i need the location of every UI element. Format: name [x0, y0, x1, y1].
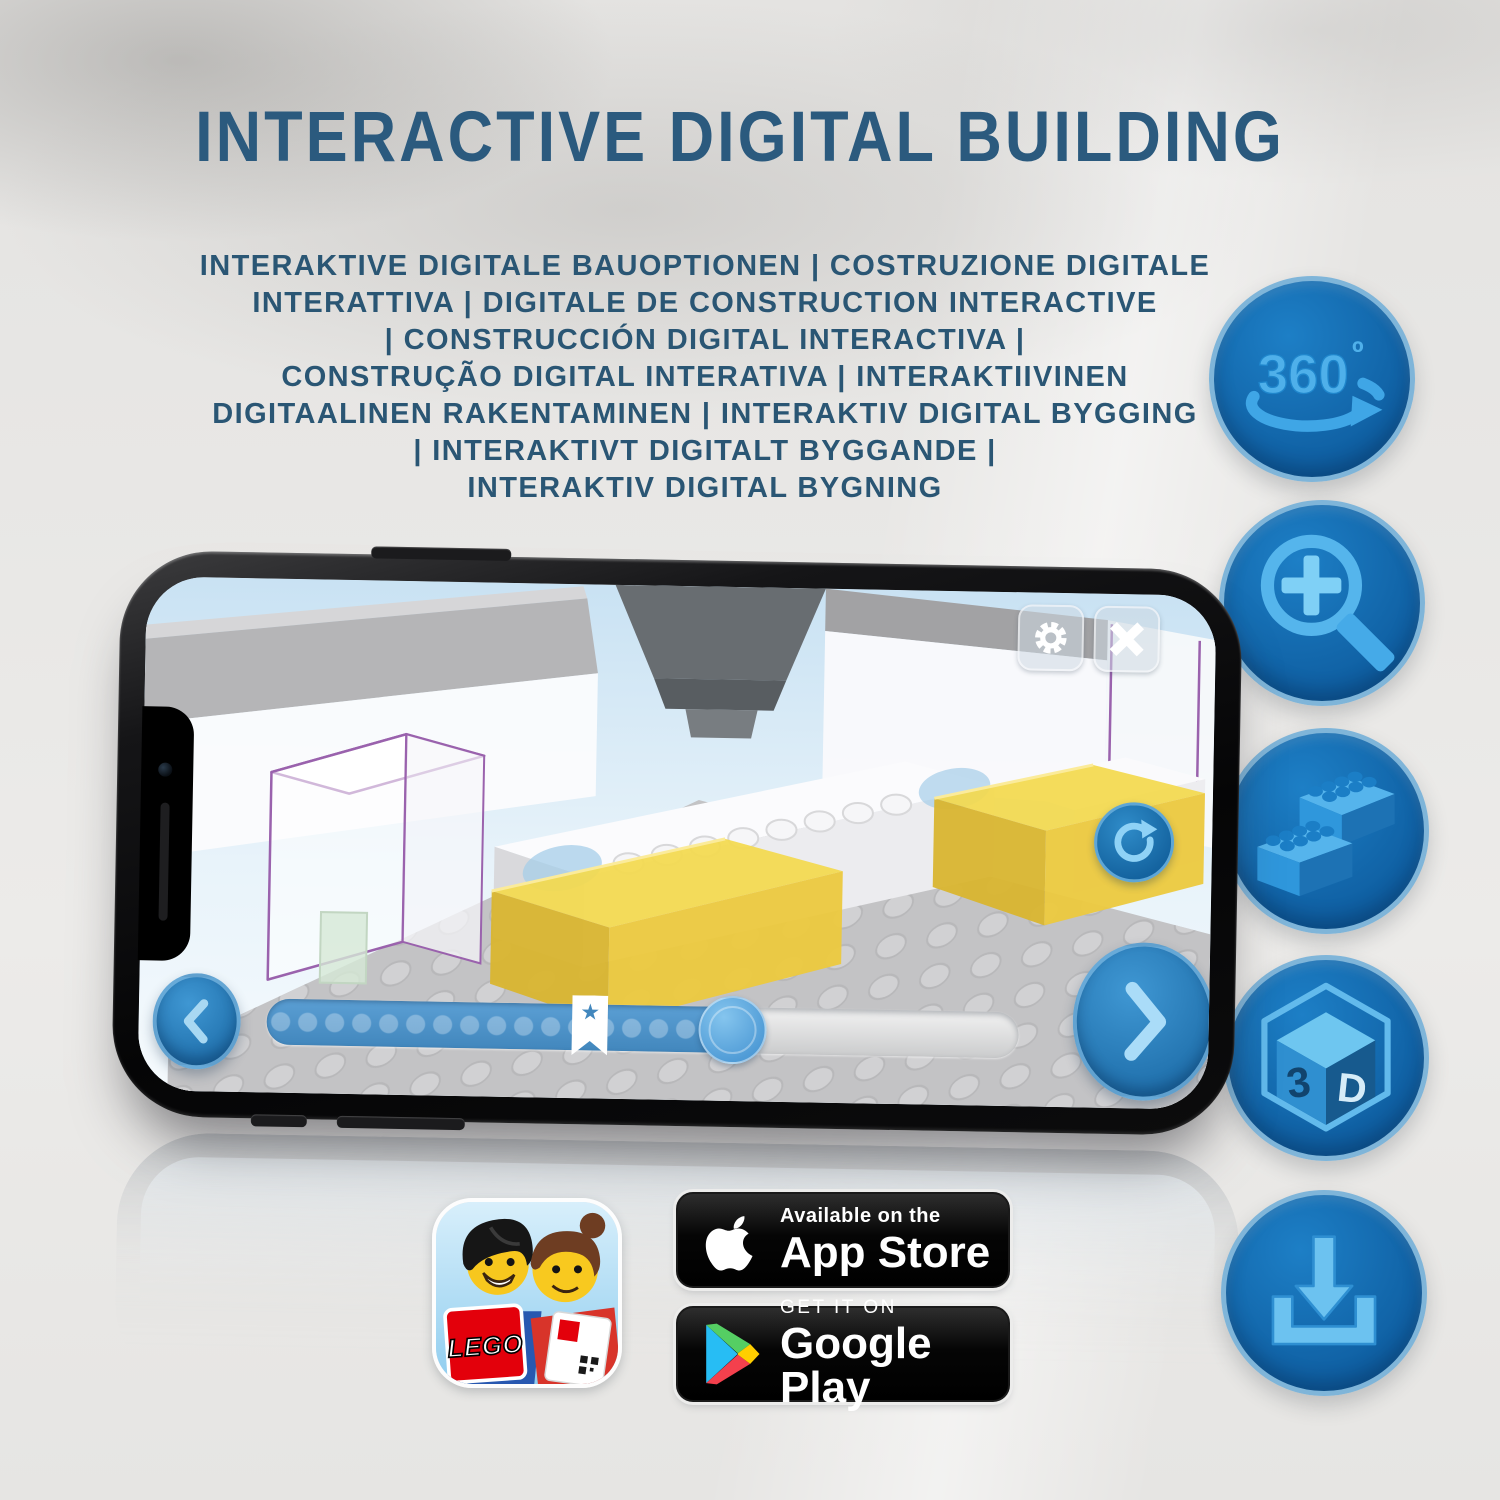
phone-device: ★	[111, 550, 1243, 1136]
subtitle-line: | INTERAKTIVT DIGITALT BYGGANDE |	[0, 433, 1410, 470]
lego-app-artwork: LEGO	[436, 1202, 618, 1384]
lego-logo-text: LEGO	[447, 1330, 525, 1363]
power-button[interactable]	[371, 546, 511, 561]
download-icon	[1236, 1205, 1412, 1381]
chevron-left-icon	[161, 984, 232, 1059]
subtitle-line: CONSTRUÇÃO DIGITAL INTERATIVA | INTERAKT…	[0, 359, 1410, 396]
feature-zoom-in	[1219, 500, 1425, 706]
lego-bricks-icon	[1238, 743, 1414, 919]
degree-symbol: º	[1352, 334, 1364, 370]
360-rotation-icon: 360 º	[1224, 291, 1400, 467]
subtitle-line: INTERAKTIV DIGITAL BYGNING	[0, 470, 1410, 507]
phone-frame: ★	[111, 550, 1243, 1136]
subtitle-line: | CONSTRUCCIÓN DIGITAL INTERACTIVA |	[0, 322, 1410, 359]
instruction-card	[544, 1311, 611, 1384]
app-store-name: App Store	[780, 1231, 990, 1275]
feature-brick-selection	[1223, 728, 1429, 934]
volume-buttons[interactable]	[337, 1116, 465, 1130]
speaker-slit	[158, 803, 169, 921]
feature-download	[1221, 1190, 1427, 1396]
refresh-icon	[1107, 815, 1162, 870]
google-play-name: Google Play	[780, 1322, 1008, 1410]
phone-notch	[138, 706, 195, 961]
star-icon: ★	[580, 995, 600, 1029]
gear-icon	[1028, 615, 1073, 660]
3d-cube-icon: 3 D	[1238, 970, 1414, 1146]
subtitle-line: INTERATTIVA | DIGITALE DE CONSTRUCTION I…	[0, 285, 1410, 322]
google-play-triangle-icon	[700, 1321, 762, 1387]
subtitle-block: INTERAKTIVE DIGITALE BAUOPTIONEN | COSTR…	[0, 248, 1410, 507]
subtitle-line: DIGITAALINEN RAKENTAMINEN | INTERAKTIV D…	[0, 396, 1410, 433]
prev-step-button[interactable]	[152, 972, 242, 1070]
google-play-badge[interactable]: GET IT ON Google Play	[676, 1306, 1010, 1402]
360-label: 360	[1258, 344, 1349, 405]
phone-screen: ★	[137, 576, 1216, 1110]
close-button[interactable]	[1093, 606, 1160, 673]
progress-fill	[266, 999, 733, 1054]
lego-app-icon[interactable]: LEGO	[432, 1198, 622, 1388]
lego-logo: LEGO	[445, 1305, 526, 1383]
close-icon	[1104, 617, 1149, 662]
cube-d-label: D	[1335, 1064, 1369, 1113]
app-store-badge[interactable]: Available on the App Store	[676, 1192, 1010, 1288]
subtitle-line: INTERAKTIVE DIGITALE BAUOPTIONEN | COSTR…	[0, 248, 1410, 285]
front-camera-dot	[158, 762, 172, 776]
page-title: INTERACTIVE DIGITAL BUILDING	[0, 96, 1480, 178]
app-store-tagline: Available on the	[780, 1206, 990, 1226]
google-play-tagline: GET IT ON	[780, 1298, 1008, 1317]
apple-logo-icon	[700, 1207, 762, 1273]
feature-360-rotation: 360 º	[1209, 276, 1415, 482]
poster-stage: INTERACTIVE DIGITAL BUILDING INTERAKTIVE…	[0, 0, 1500, 1500]
feature-3d-view: 3 D	[1223, 955, 1429, 1161]
zoom-in-magnifier-icon	[1234, 515, 1410, 691]
chevron-right-icon	[1083, 953, 1205, 1089]
settings-button[interactable]	[1017, 604, 1084, 671]
next-step-button[interactable]	[1071, 941, 1216, 1102]
mute-switch[interactable]	[251, 1114, 307, 1127]
